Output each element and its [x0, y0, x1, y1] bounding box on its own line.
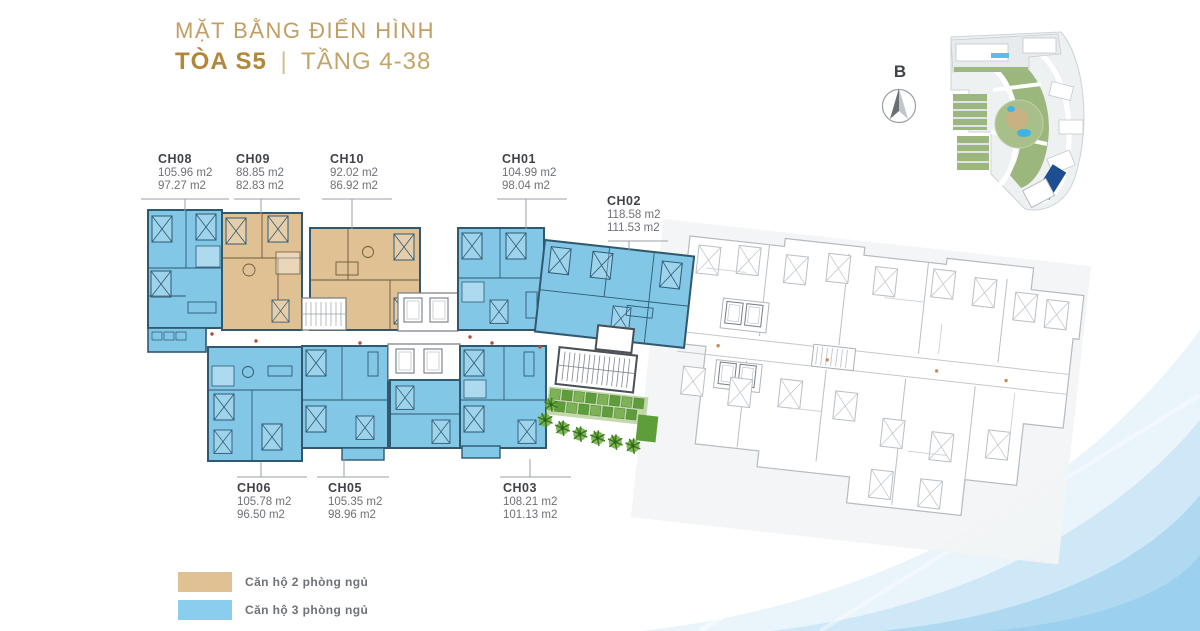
unit-mid	[390, 380, 460, 448]
unit-label-ch01: CH01 104.99 m2 98.04 m2	[502, 152, 588, 193]
legend-label-3br: Căn hộ 3 phòng ngủ	[245, 603, 368, 617]
legend-label-2br: Căn hộ 2 phòng ngủ	[245, 575, 368, 589]
unit-ch01	[458, 228, 544, 330]
unit-area-net: 98.04 m2	[502, 180, 550, 192]
unit-area-gross: 118.58 m2	[607, 209, 661, 221]
elevator-core-south	[388, 344, 460, 380]
unit-area-gross: 88.85 m2	[236, 167, 284, 179]
unit-area-net: 98.96 m2	[328, 509, 376, 521]
unit-ch08	[148, 210, 222, 352]
floor-plan-artwork	[0, 0, 1200, 631]
stair-core-west	[302, 298, 346, 330]
legend-swatch-3br	[178, 600, 232, 620]
unit-ch09	[222, 213, 302, 330]
unit-area-net: 86.92 m2	[330, 180, 378, 192]
unit-id: CH10	[330, 152, 416, 167]
unit-id: CH06	[237, 481, 323, 496]
tower-name: TÒA S5	[175, 48, 267, 75]
unit-label-ch06: CH06 105.78 m2 96.50 m2	[237, 481, 323, 522]
unit-label-ch05: CH05 105.35 m2 98.96 m2	[328, 481, 414, 522]
unit-area-net: 97.27 m2	[158, 180, 206, 192]
legend-item-2br: Căn hộ 2 phòng ngủ	[178, 571, 368, 592]
legend: Căn hộ 2 phòng ngủ Căn hộ 3 phòng ngủ	[178, 571, 368, 627]
unit-label-ch09: CH09 88.85 m2 82.83 m2	[236, 152, 322, 193]
inactive-wing-plan	[631, 219, 1091, 564]
unit-label-ch10: CH10 92.02 m2 86.92 m2	[330, 152, 416, 193]
floor-plan-page: MẶT BẰNG ĐIỂN HÌNH TÒA S5 | TẦNG 4-38 B …	[0, 0, 1200, 631]
unit-id: CH08	[158, 152, 244, 167]
north-arrow-icon	[883, 88, 916, 123]
unit-label-ch02: CH02 118.58 m2 111.53 m2	[607, 194, 693, 235]
unit-label-ch08: CH08 105.96 m2 97.27 m2	[158, 152, 244, 193]
unit-label-ch03: CH03 108.21 m2 101.13 m2	[503, 481, 589, 522]
elevator-core-north	[398, 293, 458, 331]
unit-area-gross: 105.78 m2	[237, 496, 291, 508]
title-separator: |	[280, 48, 287, 75]
plan-heading: MẶT BẰNG ĐIỂN HÌNH	[175, 18, 435, 44]
legend-swatch-2br	[178, 572, 232, 592]
unit-area-net: 96.50 m2	[237, 509, 285, 521]
legend-item-3br: Căn hộ 3 phòng ngủ	[178, 599, 368, 620]
unit-area-net: 101.13 m2	[503, 509, 557, 521]
unit-area-net: 82.83 m2	[236, 180, 284, 192]
unit-id: CH02	[607, 194, 693, 209]
unit-area-gross: 105.96 m2	[158, 167, 212, 179]
north-label: B	[886, 62, 914, 82]
site-map	[951, 32, 1084, 210]
unit-id: CH09	[236, 152, 322, 167]
unit-id: CH01	[502, 152, 588, 167]
unit-id: CH03	[503, 481, 589, 496]
unit-ch03	[460, 346, 546, 458]
unit-area-gross: 108.21 m2	[503, 496, 557, 508]
unit-area-gross: 92.02 m2	[330, 167, 378, 179]
unit-ch05	[302, 346, 388, 460]
unit-area-gross: 105.35 m2	[328, 496, 382, 508]
unit-id: CH05	[328, 481, 414, 496]
floor-range: TẦNG 4-38	[301, 48, 431, 75]
unit-area-gross: 104.99 m2	[502, 167, 556, 179]
page-title: MẶT BẰNG ĐIỂN HÌNH TÒA S5 | TẦNG 4-38	[175, 18, 435, 76]
unit-area-net: 111.53 m2	[607, 222, 660, 234]
unit-ch06	[208, 347, 302, 461]
